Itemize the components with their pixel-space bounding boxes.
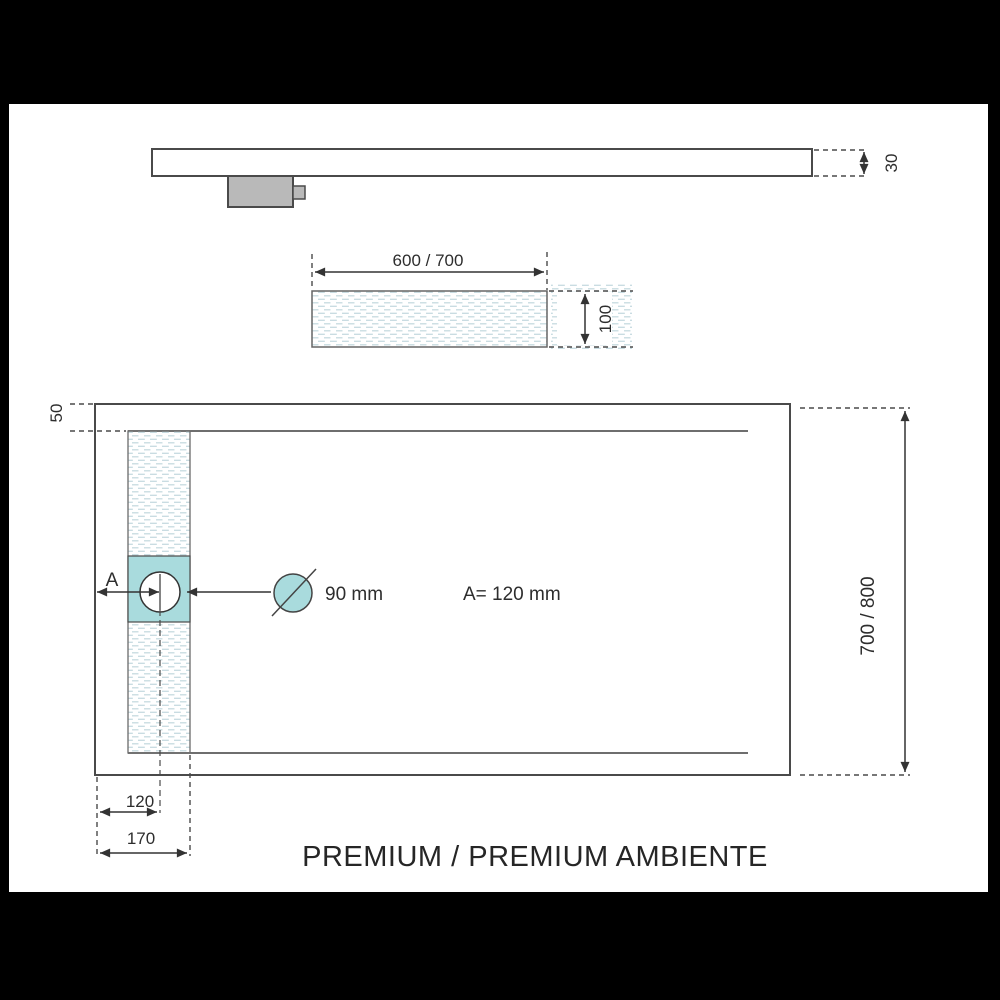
diagram-canvas: 30 600 / 700 100 A — [0, 0, 1000, 1000]
thickness-dimension-label: 30 — [882, 154, 901, 173]
channel-width-dimension-label: 600 / 700 — [393, 251, 464, 270]
top-offset-dimension-label: 50 — [47, 404, 66, 423]
drain-diameter-label: 90 mm — [325, 584, 383, 605]
drain-offset-dimension-label: 120 — [126, 792, 154, 811]
drain-outlet-stub — [293, 186, 305, 199]
a-dimension-label: A — [106, 570, 119, 591]
diagram-title: PREMIUM / PREMIUM AMBIENTE — [302, 841, 768, 873]
channel-depth-dimension-label: 100 — [596, 305, 615, 333]
drain-box — [228, 176, 293, 207]
tray-length-dimension-label: 700 / 800 — [858, 576, 879, 655]
channel-offset-dimension-label: 170 — [127, 829, 155, 848]
a-value-label: A= 120 mm — [463, 584, 561, 605]
tray-side-profile — [152, 149, 812, 176]
technical-drawing: 30 600 / 700 100 A — [0, 0, 1000, 1000]
channel-rectangle — [312, 291, 547, 347]
tray-outline — [95, 404, 790, 775]
